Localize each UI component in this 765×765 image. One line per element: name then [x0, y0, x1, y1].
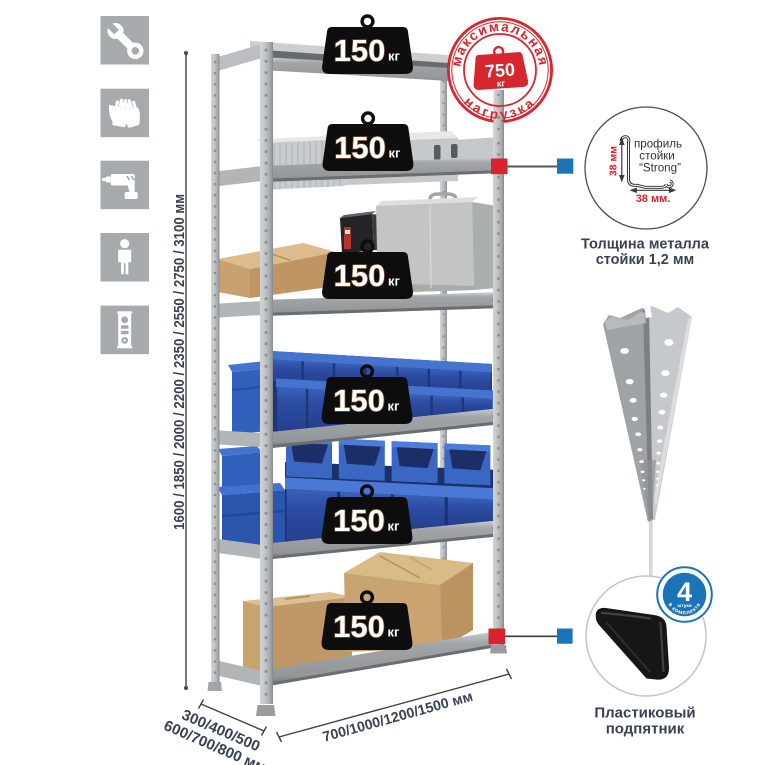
svg-text:Толщина металла: Толщина металла [581, 237, 710, 253]
svg-text:38 мм.: 38 мм. [636, 193, 671, 205]
svg-text:кг: кг [496, 78, 505, 89]
svg-text:профиль: профиль [634, 137, 682, 150]
svg-text:1600 / 1850 / 2000 / 2200 / 23: 1600 / 1850 / 2000 / 2200 / 2350 / 2550 … [171, 194, 188, 530]
svg-text:700/1000/1200/1500 мм: 700/1000/1200/1500 мм [321, 689, 475, 746]
svg-text:Пластиковый: Пластиковый [594, 705, 695, 722]
svg-text:38 мм: 38 мм [608, 146, 620, 176]
svg-text:штуки: штуки [677, 604, 692, 609]
svg-text:4: 4 [677, 577, 692, 607]
svg-text:стойки 1,2 мм: стойки 1,2 мм [596, 252, 695, 268]
svg-text:подпятник: подпятник [606, 721, 685, 738]
svg-text:“Strong”: “Strong” [639, 162, 681, 175]
